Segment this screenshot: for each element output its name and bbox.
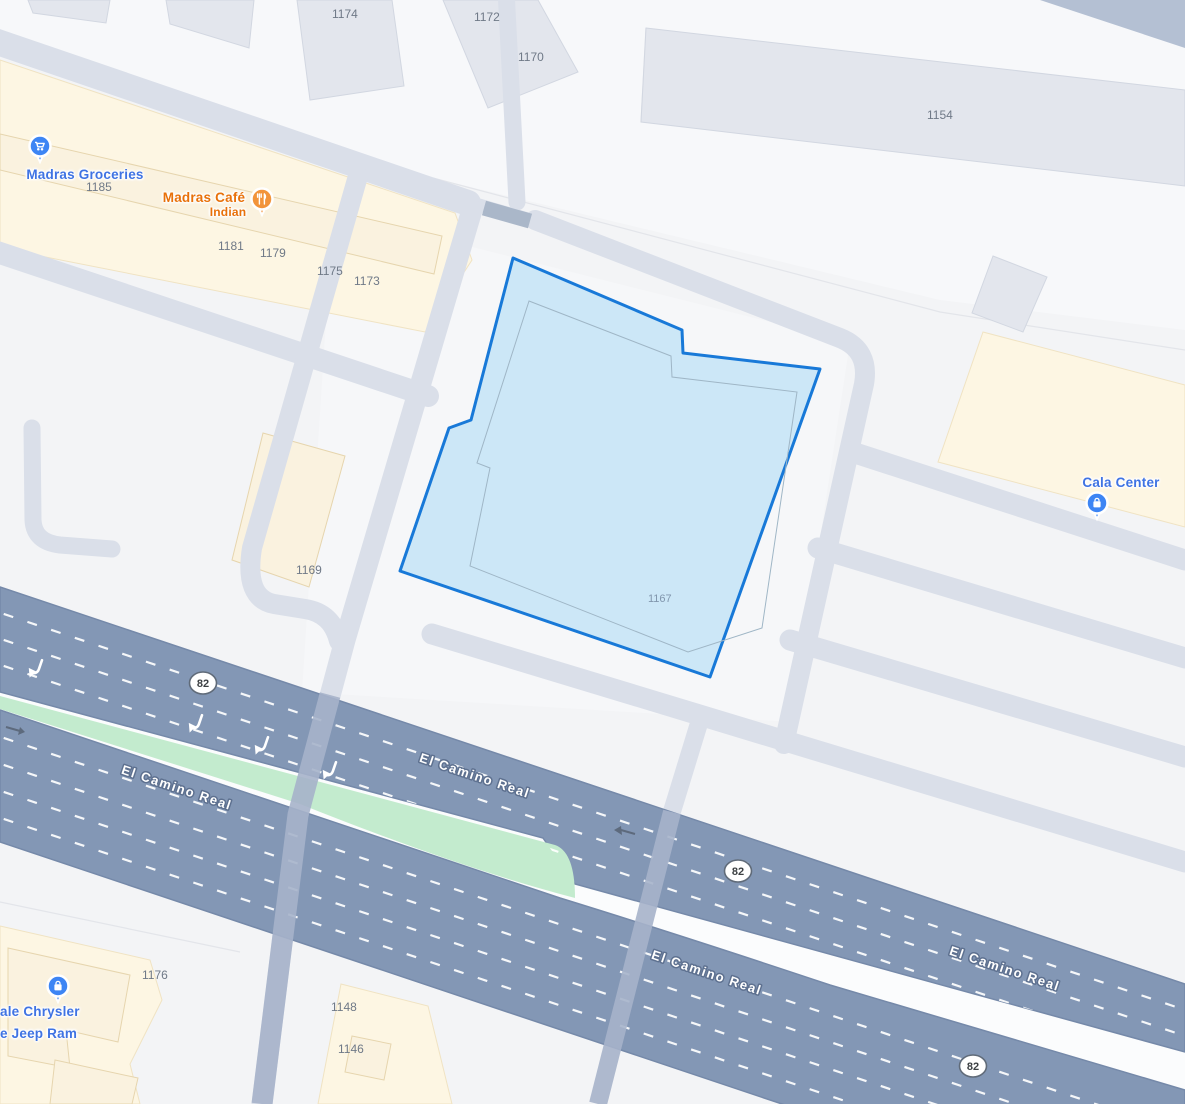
svg-text:1172: 1172 xyxy=(474,10,500,24)
label-madras-groceries[interactable]: Madras Groceries xyxy=(10,166,160,183)
label-chrysler-line1[interactable]: ale Chrysler xyxy=(0,1003,80,1020)
svg-text:1146: 1146 xyxy=(338,1042,364,1056)
svg-text:1148: 1148 xyxy=(331,1000,357,1014)
svg-text:82: 82 xyxy=(197,678,209,690)
label-chrysler-line2[interactable]: e Jeep Ram xyxy=(0,1025,77,1042)
svg-text:1175: 1175 xyxy=(317,264,343,278)
svg-text:82: 82 xyxy=(967,1061,979,1073)
map-canvas[interactable]: 1167 1174 1172 1170 1154 1185 1181 1179 … xyxy=(0,0,1185,1104)
svg-text:1181: 1181 xyxy=(218,239,244,253)
svg-text:1174: 1174 xyxy=(332,7,358,21)
svg-text:1169: 1169 xyxy=(296,563,322,577)
svg-text:82: 82 xyxy=(732,866,744,878)
map-graphics: 1167 1174 1172 1170 1154 1185 1181 1179 … xyxy=(0,0,1185,1104)
label-madras-cafe-subtitle: Indian xyxy=(153,204,303,221)
parcel-number: 1167 xyxy=(648,593,672,605)
svg-text:1179: 1179 xyxy=(260,246,286,260)
svg-text:1170: 1170 xyxy=(518,50,544,64)
svg-text:1154: 1154 xyxy=(927,108,953,122)
svg-text:1176: 1176 xyxy=(142,968,168,982)
label-cala-center[interactable]: Cala Center xyxy=(1046,474,1185,491)
svg-text:1173: 1173 xyxy=(354,274,380,288)
